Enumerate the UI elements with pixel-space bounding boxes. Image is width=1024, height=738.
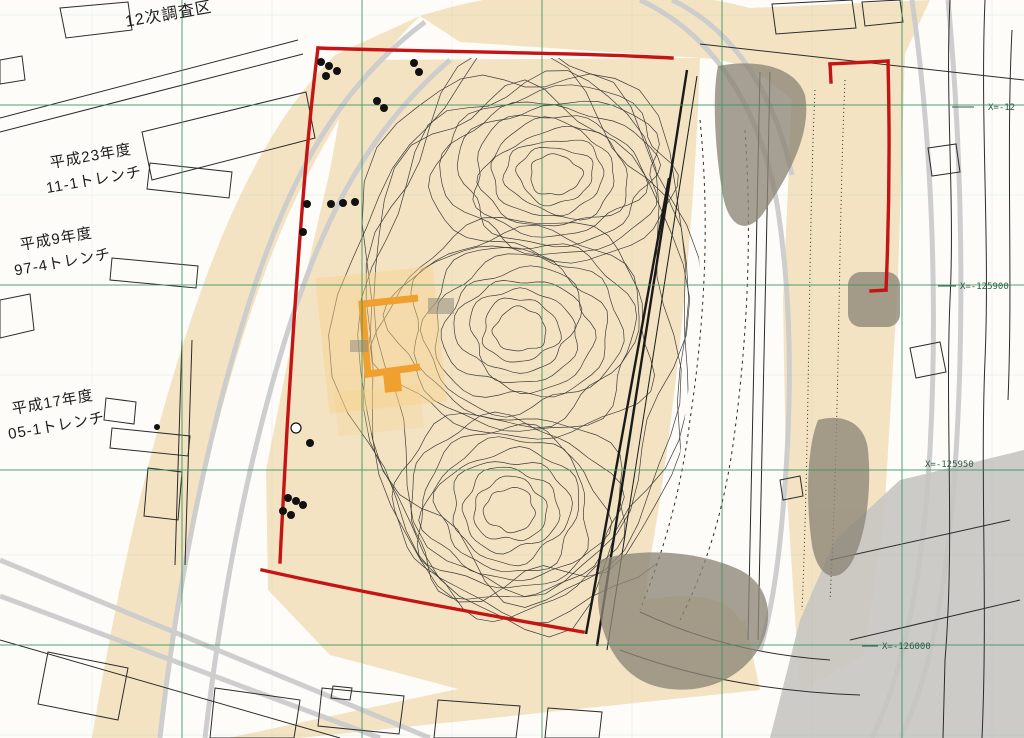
building-outline	[545, 708, 602, 738]
point-marker	[415, 68, 423, 76]
point-marker	[327, 200, 335, 208]
building-outline	[928, 144, 960, 176]
point-marker	[279, 507, 287, 515]
east-area-boundary-left-stub	[830, 64, 831, 82]
point-marker	[287, 511, 295, 519]
structure-pale-fill-2	[334, 384, 424, 437]
point-marker	[292, 497, 300, 505]
point-marker	[284, 494, 292, 502]
point-marker	[333, 67, 341, 75]
point-marker	[380, 104, 388, 112]
point-marker	[322, 72, 330, 80]
road-line	[0, 40, 298, 118]
point-marker	[306, 439, 314, 447]
structure-annex	[383, 371, 402, 393]
point-marker	[299, 228, 307, 236]
point-marker	[303, 200, 311, 208]
shade-blob-east-upper	[848, 272, 900, 327]
site-plan-page: X=-12 X=-125900 X=-125950 X=-126000	[0, 0, 1024, 738]
building-outline	[104, 398, 136, 424]
grid-label-x3: X=-125950	[925, 460, 974, 470]
building-outline	[0, 56, 25, 84]
point-marker	[351, 198, 359, 206]
structure-gray-patch	[350, 340, 368, 352]
point-marker	[154, 424, 160, 430]
point-marker-open	[291, 423, 301, 433]
point-marker	[325, 62, 333, 70]
field-boundary	[1008, 30, 1012, 400]
grid-label-x4: X=-126000	[882, 642, 931, 652]
point-marker	[317, 58, 325, 66]
point-marker	[410, 59, 418, 67]
building-outline	[0, 294, 34, 338]
building-outline	[331, 686, 352, 700]
point-marker	[299, 501, 307, 509]
building-outline	[60, 2, 132, 38]
building-outline	[910, 342, 946, 378]
east-area-boundary-hook	[871, 290, 886, 291]
trench-outline-11-1	[147, 163, 232, 198]
point-marker	[339, 199, 347, 207]
point-marker	[373, 97, 381, 105]
road-line	[0, 54, 303, 132]
structure-gray-patch	[428, 298, 454, 314]
site-map: X=-12 X=-125900 X=-125950 X=-126000	[0, 0, 1024, 738]
grid-label-x1: X=-12	[988, 103, 1015, 113]
grid-label-x2: X=-125900	[960, 282, 1009, 292]
trench-outline-97-4	[110, 258, 198, 288]
